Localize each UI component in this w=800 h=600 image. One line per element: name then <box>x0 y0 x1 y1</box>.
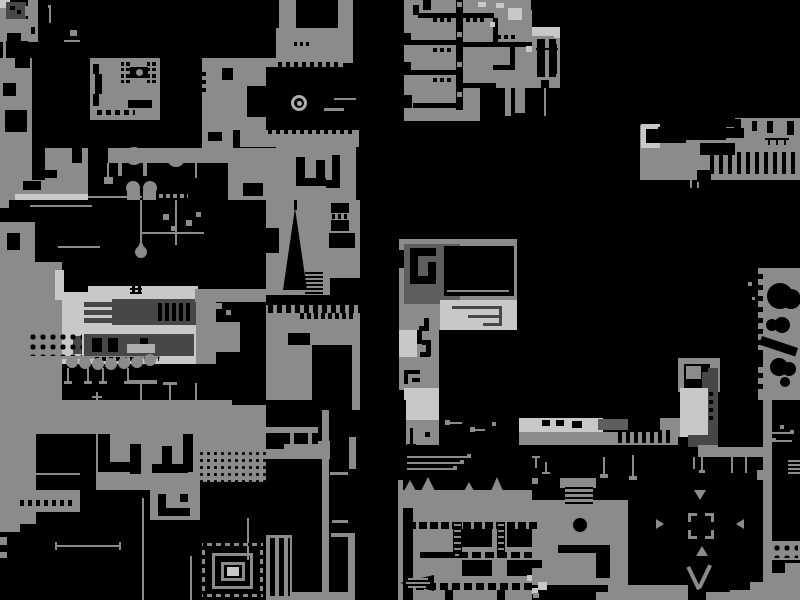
map-terrain-rect <box>741 576 748 583</box>
map-triangle <box>136 240 146 252</box>
map-terrain-rect <box>142 498 144 600</box>
map-terrain-rect <box>352 340 360 410</box>
map-terrain-rect <box>128 100 152 108</box>
map-dash-pattern <box>202 546 205 594</box>
map-terrain-rect <box>104 177 113 184</box>
map-terrain-rect <box>418 276 436 284</box>
map-terrain-rect <box>7 33 21 41</box>
map-terrain-rect <box>444 246 514 296</box>
map-terrain-rect <box>468 315 502 318</box>
reticle-bracket <box>711 530 714 539</box>
map-terrain-rect <box>95 74 102 94</box>
map-terrain-rect <box>405 40 456 45</box>
map-rubble-texture <box>266 459 282 479</box>
map-terrain-rect <box>182 334 194 354</box>
map-nested-frame <box>221 562 245 581</box>
map-terrain-rect <box>127 380 157 384</box>
map-dash-pattern <box>332 214 350 219</box>
map-terrain-rect <box>405 70 456 75</box>
reticle-arrow-left-icon <box>656 519 664 529</box>
map-terrain-rect <box>67 368 69 382</box>
map-terrain-rect <box>58 246 100 248</box>
map-terrain-rect <box>36 434 96 498</box>
map-terrain-rect <box>49 8 51 23</box>
map-terrain-rect <box>407 462 462 464</box>
map-terrain-rect <box>349 437 356 469</box>
map-terrain-rect <box>407 468 455 470</box>
map-terrain-rect <box>107 163 109 177</box>
map-terrain-rect <box>734 119 741 131</box>
map-terrain-rect <box>608 585 688 600</box>
map-triangle <box>421 477 435 491</box>
map-terrain-rect <box>413 103 460 108</box>
map-terrain-rect <box>731 457 733 473</box>
map-terrain-rect <box>92 338 102 352</box>
map-terrain-rect <box>127 344 155 353</box>
map-terrain-rect <box>483 323 502 326</box>
map-terrain-rect <box>124 72 126 84</box>
map-terrain-rect <box>166 334 178 354</box>
map-terrain-rect <box>0 58 32 148</box>
map-terrain-rect <box>171 226 176 231</box>
map-dash-pattern <box>618 430 672 443</box>
reticle-bracket <box>688 513 691 522</box>
map-terrain-rect <box>542 420 550 426</box>
map-dash-pattern <box>203 594 262 597</box>
map-terrain-rect <box>399 330 417 357</box>
reticle-arrow-top-icon <box>694 490 706 500</box>
map-circle <box>297 101 302 106</box>
map-terrain-rect <box>8 473 80 475</box>
map-terrain-rect <box>162 446 172 468</box>
map-terrain-rect <box>88 286 198 294</box>
reticle-arrow-right-icon <box>736 519 744 529</box>
map-terrain-rect <box>70 30 77 36</box>
map-terrain-rect <box>600 474 608 478</box>
reticle-arrow-bottom-icon <box>696 546 708 556</box>
map-terrain-rect <box>768 573 786 600</box>
map-terrain-rect <box>158 508 190 516</box>
map-terrain-rect <box>118 163 122 176</box>
map-terrain-rect <box>108 338 118 352</box>
map-terrain-rect <box>447 290 509 292</box>
map-terrain-rect <box>0 517 7 523</box>
map-terrain-rect <box>768 140 770 145</box>
map-rubble-texture <box>28 332 82 356</box>
map-dash-pattern <box>268 305 356 313</box>
map-terrain-rect <box>545 39 549 81</box>
map-terrain-rect <box>750 582 768 600</box>
map-terrain-rect <box>475 429 485 431</box>
map-terrain-rect <box>788 464 800 466</box>
map-terrain-rect <box>462 560 492 576</box>
map-terrain-rect <box>308 433 312 444</box>
map-terrain-rect <box>533 593 539 598</box>
map-terrain-rect <box>698 445 718 457</box>
map-terrain-rect <box>175 200 177 245</box>
map-dash-pattern <box>497 35 517 39</box>
map-terrain-rect <box>10 6 15 10</box>
map-terrain-rect <box>748 282 752 286</box>
map-dash-pattern <box>202 72 206 92</box>
map-terrain-rect <box>140 232 204 234</box>
map-triangle <box>491 477 503 491</box>
map-terrain-rect <box>243 183 263 196</box>
map-circle <box>66 356 78 368</box>
map-dash-pattern <box>268 130 356 134</box>
map-terrain-rect <box>17 10 21 14</box>
map-terrain-rect <box>680 388 708 437</box>
map-terrain-rect <box>767 121 773 133</box>
map-terrain-rect <box>30 205 92 207</box>
map-circle <box>782 362 796 376</box>
map-terrain-rect <box>28 0 38 42</box>
reticle-bracket <box>711 513 714 522</box>
map-terrain-rect <box>0 537 7 545</box>
map-terrain-rect <box>130 288 142 290</box>
map-terrain-rect <box>0 400 232 432</box>
map-terrain-rect <box>291 592 349 600</box>
map-terrain-rect <box>195 163 197 178</box>
map-dash-pattern <box>300 313 356 319</box>
map-terrain-rect <box>88 196 142 198</box>
map-rubble-texture <box>772 543 798 558</box>
map-terrain-rect <box>331 533 350 537</box>
map-terrain-rect <box>658 127 686 143</box>
map-terrain-rect <box>492 422 496 426</box>
map-terrain-rect <box>55 545 121 547</box>
map-terrain-rect <box>331 203 349 213</box>
map-terrain-rect <box>322 410 329 600</box>
map-terrain-rect <box>404 95 412 108</box>
map-terrain-rect <box>290 433 294 444</box>
map-circle <box>781 289 800 309</box>
map-terrain-rect <box>757 470 763 480</box>
map-dash-pattern <box>550 586 586 591</box>
map-terrain-rect <box>701 457 703 471</box>
map-terrain-rect <box>0 200 9 208</box>
map-terrain-rect <box>214 322 240 352</box>
map-terrain-rect <box>3 41 6 58</box>
map-terrain-rect <box>331 220 349 231</box>
map-terrain-rect <box>196 300 216 364</box>
map-terrain-rect <box>195 289 268 302</box>
map-terrain-rect <box>690 180 692 188</box>
map-terrain-rect <box>478 2 486 7</box>
map-terrain-rect <box>490 22 495 27</box>
map-terrain-rect <box>752 297 755 300</box>
map-terrain-rect <box>186 220 192 226</box>
map-terrain-rect <box>224 98 229 103</box>
map-terrain-rect <box>3 83 16 96</box>
map-terrain-rect <box>324 108 344 111</box>
map-circle <box>167 149 185 167</box>
map-terrain-rect <box>180 494 188 502</box>
map-terrain-rect <box>452 306 502 309</box>
map-terrain-rect <box>603 457 605 475</box>
map-terrain-rect <box>332 520 348 523</box>
map-terrain-rect <box>326 180 340 188</box>
map-fish-hatch-line <box>406 582 430 584</box>
map-dash-pattern <box>152 194 188 198</box>
map-terrain-rect <box>542 472 550 474</box>
map-terrain-rect <box>686 366 701 379</box>
map-terrain-rect <box>776 140 778 145</box>
reticle-bracket <box>688 530 691 539</box>
map-terrain-rect <box>629 476 637 480</box>
map-terrain-rect <box>752 121 757 131</box>
map-terrain-rect <box>423 0 431 10</box>
map-terrain-rect <box>102 368 104 382</box>
map-terrain-rect <box>87 368 89 382</box>
map-terrain-rect <box>334 98 356 100</box>
map-terrain-rect <box>410 248 418 284</box>
map-terrain-rect <box>32 148 45 163</box>
map-terrain-rect <box>31 27 35 34</box>
map-dash-pattern <box>433 78 453 82</box>
map-dash-pattern <box>457 2 462 114</box>
map-terrain-rect <box>697 170 711 180</box>
map-terrain-rect <box>425 432 430 437</box>
map-terrain-rect <box>632 455 634 477</box>
map-terrain-rect <box>745 457 747 473</box>
map-terrain-rect <box>532 560 542 568</box>
map-terrain-rect <box>92 396 102 398</box>
map-fish-hatch-line <box>408 586 426 588</box>
map-terrain-rect <box>774 440 792 442</box>
map-circle <box>125 147 143 165</box>
map-terrain-rect <box>510 47 515 70</box>
map-circle <box>118 357 130 369</box>
map-dash-pattern <box>278 62 340 67</box>
map-terrain-rect <box>594 510 628 546</box>
map-circle <box>144 354 156 366</box>
map-terrain-rect <box>505 86 511 116</box>
map-dash-pattern <box>433 18 453 22</box>
map-terrain-rect <box>407 456 469 458</box>
map-terrain-rect <box>399 250 404 268</box>
map-terrain-rect <box>140 384 142 400</box>
map-terrain-rect <box>143 163 147 176</box>
map-dash-pattern <box>710 152 800 174</box>
map-terrain-rect <box>130 292 142 294</box>
map-terrain-rect <box>64 381 72 384</box>
map-terrain-rect <box>787 121 794 135</box>
map-dash-pattern <box>433 48 453 52</box>
map-dash-pattern <box>565 487 593 504</box>
map-fish-hatch-line <box>408 578 428 580</box>
map-terrain-rect <box>190 556 192 600</box>
map-circle <box>131 356 143 368</box>
map-dash-pattern <box>270 538 290 596</box>
map-terrain-rect <box>536 48 558 50</box>
map-terrain-rect <box>330 472 348 475</box>
map-terrain-rect <box>535 458 537 468</box>
map-terrain-rect <box>554 33 560 38</box>
map-terrain-rect <box>646 129 658 143</box>
map-terrain-rect <box>45 170 57 178</box>
map-terrain-rect <box>222 68 233 80</box>
map-terrain-rect <box>93 64 99 74</box>
map-terrain-rect <box>515 86 525 113</box>
map-terrain-rect <box>598 419 628 430</box>
map-terrain-rect <box>140 200 142 243</box>
map-circle <box>136 69 143 76</box>
map-terrain-rect <box>407 444 416 447</box>
map-terrain-rect <box>493 65 510 70</box>
map-terrain-rect <box>150 72 152 84</box>
map-terrain-rect <box>462 529 492 547</box>
map-terrain-rect <box>0 552 7 558</box>
map-terrain-rect <box>404 62 411 75</box>
map-dash-pattern <box>294 42 310 46</box>
map-terrain-rect <box>333 248 345 252</box>
map-circle <box>105 358 117 370</box>
map-terrain-rect <box>316 160 325 186</box>
map-terrain-rect <box>460 460 464 464</box>
map-terrain-rect <box>788 468 800 470</box>
map-dash-pattern <box>305 272 323 294</box>
map-terrain-rect <box>453 466 457 470</box>
map-terrain-rect <box>332 155 340 183</box>
map-terrain-rect <box>15 58 30 68</box>
map-terrain-rect <box>450 422 462 424</box>
map-terrain-rect <box>279 0 296 30</box>
map-circle <box>780 377 790 387</box>
map-terrain-rect <box>348 533 355 600</box>
map-terrain-rect <box>763 370 772 457</box>
game-screen <box>0 0 800 600</box>
map-terrain-rect <box>99 381 107 384</box>
map-circle <box>143 181 157 195</box>
map-terrain-rect <box>718 447 763 457</box>
map-terrain-rect <box>508 8 522 20</box>
map-rubble-texture <box>198 450 266 482</box>
map-circle <box>92 358 104 370</box>
map-terrain-rect <box>558 545 610 553</box>
map-terrain-rect <box>226 310 231 315</box>
map-terrain-rect <box>15 194 88 200</box>
map-terrain-rect <box>163 214 169 220</box>
map-terrain-rect <box>266 345 312 400</box>
map-terrain-rect <box>572 421 582 428</box>
map-terrain-rect <box>420 352 430 357</box>
map-terrain-rect <box>266 58 276 67</box>
map-terrain-rect <box>412 378 420 382</box>
map-dash-pattern <box>260 546 263 594</box>
map-terrain-rect <box>463 42 533 47</box>
map-terrain-rect <box>596 592 610 600</box>
map-terrain-rect <box>641 143 660 148</box>
map-terrain-rect <box>88 148 108 163</box>
map-terrain-rect <box>496 3 504 8</box>
map-terrain-rect <box>208 132 222 141</box>
map-terrain-rect <box>697 182 699 188</box>
map-terrain-rect <box>8 519 13 524</box>
map-terrain-rect <box>130 444 141 474</box>
map-terrain-rect <box>780 425 784 429</box>
map-terrain-rect <box>730 590 752 600</box>
map-terrain-rect <box>790 430 794 434</box>
map-terrain-rect <box>531 0 535 10</box>
map-terrain-rect <box>6 2 26 19</box>
game-map-canvas[interactable] <box>0 0 800 600</box>
map-terrain-rect <box>544 88 546 116</box>
map-terrain-rect <box>150 60 152 72</box>
map-terrain-rect <box>404 388 439 400</box>
map-terrain-rect <box>183 434 193 472</box>
map-terrain-rect <box>5 110 27 132</box>
map-terrain-rect <box>0 524 20 532</box>
map-terrain-rect <box>784 140 786 145</box>
map-terrain-rect <box>596 553 610 578</box>
map-terrain-rect <box>406 400 439 420</box>
map-terrain-rect <box>413 5 419 15</box>
map-circle <box>126 181 140 195</box>
map-dash-pattern <box>420 552 532 558</box>
map-dash-pattern <box>709 392 713 422</box>
map-dash-pattern <box>158 303 192 321</box>
map-terrain-rect <box>520 505 532 517</box>
map-triangle <box>464 482 474 491</box>
map-terrain-rect <box>541 80 549 88</box>
map-terrain-rect <box>686 126 726 140</box>
map-terrain-rect <box>768 432 790 434</box>
map-dash-pattern <box>466 18 486 22</box>
map-terrain-rect <box>266 228 279 253</box>
map-terrain-rect <box>404 33 411 45</box>
map-terrain-rect <box>12 462 14 500</box>
map-triangle <box>404 480 416 491</box>
map-terrain-rect <box>64 40 80 42</box>
map-terrain-rect <box>329 233 355 248</box>
map-circle <box>766 319 778 331</box>
map-terrain-rect <box>497 590 505 600</box>
map-dash-pattern <box>408 522 538 529</box>
map-terrain-rect <box>55 542 57 550</box>
map-terrain-rect <box>532 478 538 484</box>
map-terrain-rect <box>124 60 126 72</box>
map-terrain-rect <box>0 262 62 300</box>
map-terrain-rect <box>404 370 408 384</box>
map-circle <box>573 518 587 532</box>
map-terrain-rect <box>693 457 695 469</box>
map-terrain-rect <box>196 212 201 217</box>
map-terrain-rect <box>32 163 45 180</box>
map-terrain-rect <box>699 470 705 473</box>
map-dash-pattern <box>758 274 763 392</box>
map-dash-pattern <box>203 543 262 546</box>
map-terrain-rect <box>23 181 41 190</box>
map-dash-pattern <box>20 500 76 506</box>
map-terrain-rect <box>216 303 222 309</box>
map-terrain-rect <box>119 542 121 550</box>
map-terrain-rect <box>7 233 20 250</box>
map-terrain-rect <box>788 472 800 474</box>
map-terrain-rect <box>532 456 540 458</box>
map-terrain-rect <box>556 420 564 426</box>
map-terrain-rect <box>72 148 82 163</box>
map-terrain-rect <box>467 454 471 458</box>
map-terrain-rect <box>538 582 547 590</box>
map-terrain-rect <box>785 563 800 600</box>
map-terrain-rect <box>445 590 453 600</box>
map-terrain-rect <box>93 94 99 106</box>
map-terrain-rect <box>788 460 800 462</box>
map-triangle <box>283 208 307 290</box>
map-circle <box>79 357 91 369</box>
map-dash-pattern <box>97 110 135 115</box>
